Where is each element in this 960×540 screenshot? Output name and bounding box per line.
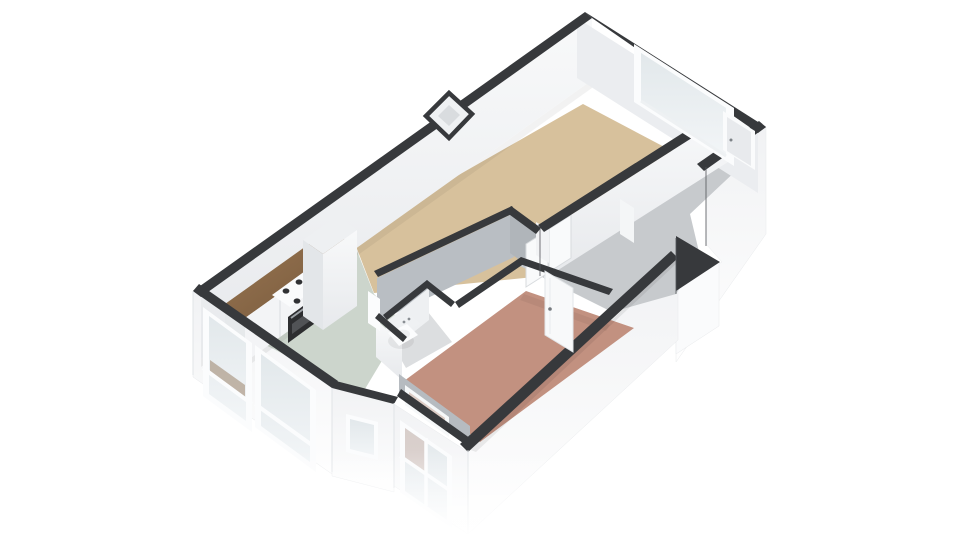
floorplan-3d-render (0, 0, 960, 540)
door-handle (548, 307, 552, 311)
tall-cabinet-side (303, 240, 323, 330)
bottom-fade (0, 450, 960, 540)
front-door-handle (730, 139, 733, 142)
floorplan-canvas[interactable] (0, 0, 960, 540)
